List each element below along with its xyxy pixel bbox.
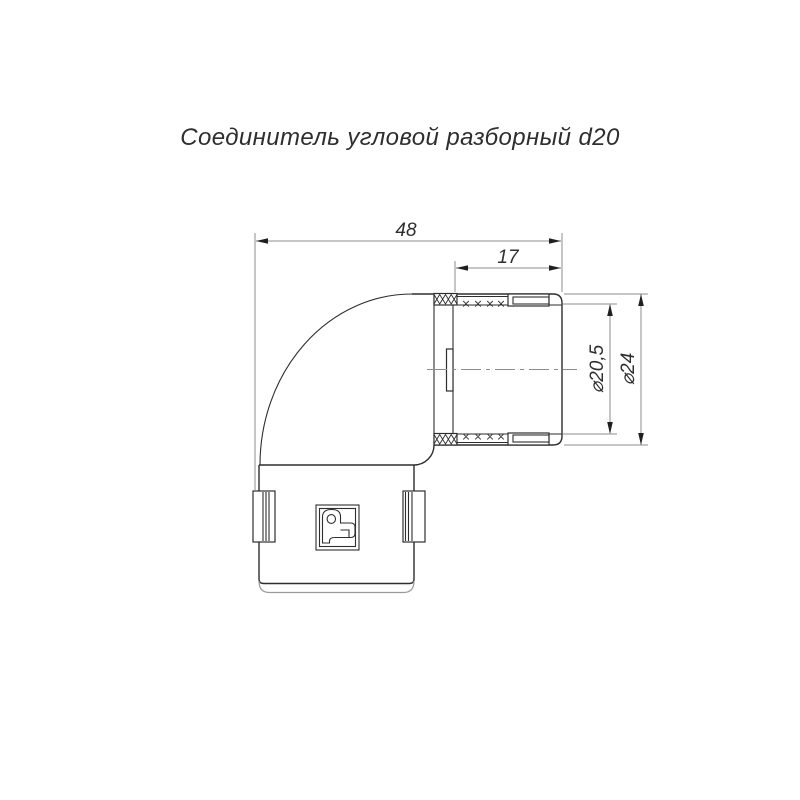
brand-logo-glyph — [323, 510, 356, 544]
elbow-outer-arc — [260, 294, 412, 465]
dim-total-length-label: 48 — [395, 220, 417, 241]
dim-outer-diameter-label: ⌀24 — [618, 353, 639, 386]
cad-drawing-page: Соединитель угловой разборный d20 48 17 — [0, 0, 800, 800]
dim-inner-diameter-label: ⌀20,5 — [587, 344, 608, 393]
thread-band-top — [434, 294, 457, 306]
latch-bottom — [508, 433, 549, 445]
connector-body — [259, 465, 414, 593]
elbow-inner-fillet — [414, 445, 434, 465]
thread-marks-bottom — [463, 434, 514, 440]
dimension-spigot-length: 17 — [455, 247, 561, 292]
clip-right — [403, 491, 425, 542]
latch-top — [508, 294, 549, 306]
technical-drawing-svg: 48 17 ⌀20,5 ⌀24 — [0, 0, 800, 800]
dim-spigot-length-label: 17 — [497, 247, 520, 268]
thread-marks-top — [463, 301, 514, 307]
brand-logo — [316, 505, 359, 550]
clip-left — [253, 491, 275, 542]
thread-band-bottom — [434, 434, 457, 446]
